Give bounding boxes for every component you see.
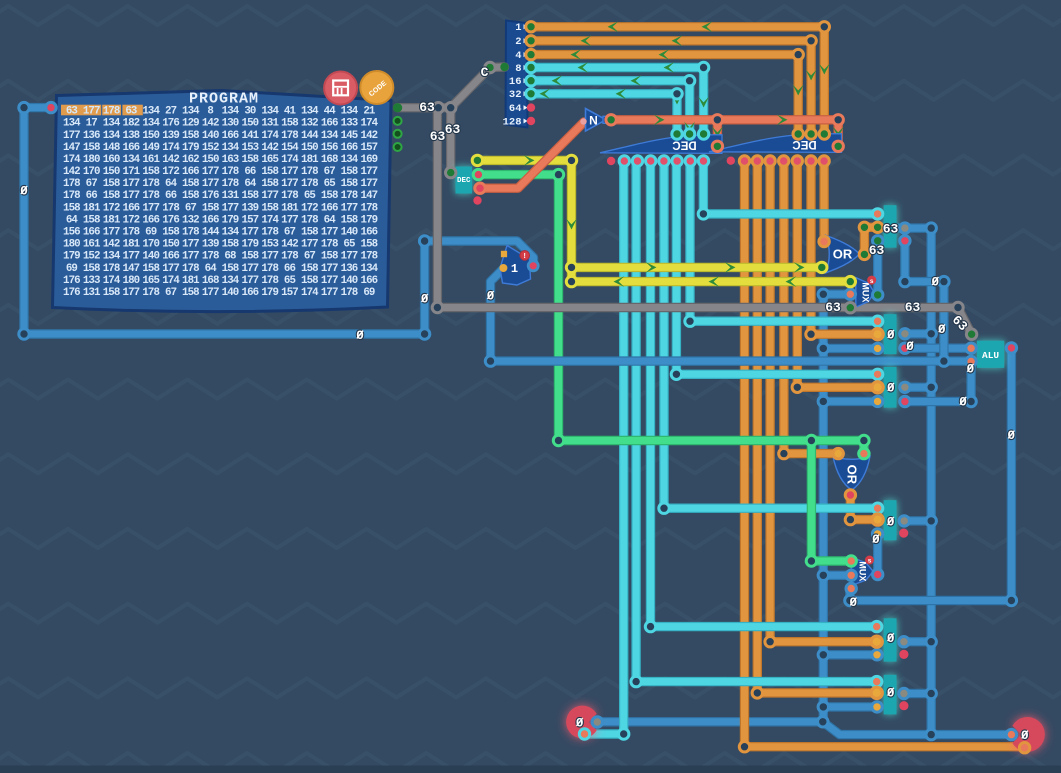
svg-text:178: 178 xyxy=(261,227,278,239)
svg-text:158: 158 xyxy=(341,178,358,190)
svg-text:DEC: DEC xyxy=(672,141,696,153)
svg-text:158: 158 xyxy=(83,214,100,226)
svg-text:178: 178 xyxy=(162,202,179,214)
svg-text:OR: OR xyxy=(833,247,853,262)
svg-text:166: 166 xyxy=(182,166,199,178)
svg-text:178: 178 xyxy=(281,251,298,263)
svg-text:180: 180 xyxy=(83,154,100,166)
svg-text:152: 152 xyxy=(202,142,219,154)
svg-text:171: 171 xyxy=(123,166,141,178)
svg-text:166: 166 xyxy=(321,118,338,130)
svg-text:s: s xyxy=(870,278,874,285)
svg-text:179: 179 xyxy=(361,214,378,226)
svg-text:156: 156 xyxy=(63,227,80,239)
svg-text:8: 8 xyxy=(207,106,213,118)
svg-text:174: 174 xyxy=(162,275,180,287)
svg-text:166: 166 xyxy=(361,227,378,239)
svg-text:148: 148 xyxy=(103,142,120,154)
svg-text:177: 177 xyxy=(321,275,338,287)
svg-text:179: 179 xyxy=(261,287,278,299)
svg-text:65: 65 xyxy=(284,275,296,287)
svg-text:65: 65 xyxy=(304,190,316,202)
svg-text:181: 181 xyxy=(123,239,141,251)
svg-text:165: 165 xyxy=(142,275,159,287)
svg-text:174: 174 xyxy=(261,130,279,142)
svg-text:177: 177 xyxy=(202,178,219,190)
svg-text:165: 165 xyxy=(261,154,278,166)
svg-text:16: 16 xyxy=(509,76,522,88)
svg-text:69: 69 xyxy=(66,263,78,275)
svg-text:181: 181 xyxy=(281,202,299,214)
svg-text:178: 178 xyxy=(202,251,219,263)
svg-text:142: 142 xyxy=(261,142,278,154)
svg-text:69: 69 xyxy=(145,227,157,239)
svg-text:64: 64 xyxy=(244,178,257,190)
svg-text:166: 166 xyxy=(123,202,140,214)
svg-text:MUX: MUX xyxy=(861,282,871,302)
svg-text:144: 144 xyxy=(301,130,319,142)
svg-text:140: 140 xyxy=(222,287,239,299)
svg-text:66: 66 xyxy=(86,190,98,202)
svg-text:67: 67 xyxy=(185,202,197,214)
svg-text:177: 177 xyxy=(361,178,378,190)
svg-text:178: 178 xyxy=(142,287,159,299)
svg-text:158: 158 xyxy=(103,287,120,299)
svg-text:63: 63 xyxy=(905,300,921,315)
svg-text:166: 166 xyxy=(222,130,239,142)
svg-text:158: 158 xyxy=(321,190,338,202)
svg-text:157: 157 xyxy=(242,214,259,226)
svg-text:174: 174 xyxy=(103,275,121,287)
svg-text:68: 68 xyxy=(224,251,236,263)
svg-text:182: 182 xyxy=(123,118,140,130)
svg-text:134: 134 xyxy=(222,227,240,239)
svg-text:134: 134 xyxy=(222,142,240,154)
svg-text:67: 67 xyxy=(304,251,316,263)
svg-text:166: 166 xyxy=(321,202,338,214)
svg-text:177: 177 xyxy=(162,263,179,275)
svg-text:65: 65 xyxy=(324,178,336,190)
svg-text:158: 158 xyxy=(341,166,358,178)
svg-text:147: 147 xyxy=(63,142,80,154)
svg-text:177: 177 xyxy=(182,239,199,251)
svg-text:177: 177 xyxy=(182,251,199,263)
svg-text:176: 176 xyxy=(63,275,80,287)
svg-text:67: 67 xyxy=(284,227,296,239)
svg-text:181: 181 xyxy=(83,202,101,214)
svg-text:168: 168 xyxy=(202,275,219,287)
svg-text:158: 158 xyxy=(83,142,100,154)
svg-text:158: 158 xyxy=(261,166,278,178)
svg-text:64: 64 xyxy=(205,263,218,275)
svg-text:142: 142 xyxy=(202,118,219,130)
svg-text:66: 66 xyxy=(244,166,256,178)
svg-text:177: 177 xyxy=(222,202,239,214)
svg-text:178: 178 xyxy=(361,251,378,263)
svg-text:158: 158 xyxy=(103,178,120,190)
svg-text:64: 64 xyxy=(165,178,178,190)
svg-text:177: 177 xyxy=(361,166,378,178)
svg-text:150: 150 xyxy=(301,142,318,154)
svg-text:147: 147 xyxy=(361,190,378,202)
svg-text:134: 134 xyxy=(261,106,279,118)
svg-text:1: 1 xyxy=(511,262,518,276)
svg-text:178: 178 xyxy=(341,287,358,299)
svg-text:178: 178 xyxy=(142,190,159,202)
svg-text:158: 158 xyxy=(142,263,159,275)
svg-text:158: 158 xyxy=(242,190,259,202)
svg-text:134: 134 xyxy=(301,106,319,118)
svg-text:134: 134 xyxy=(103,130,121,142)
svg-text:134: 134 xyxy=(103,251,121,263)
svg-text:158: 158 xyxy=(242,154,259,166)
svg-text:178: 178 xyxy=(142,178,159,190)
svg-text:177: 177 xyxy=(261,190,278,202)
svg-text:169: 169 xyxy=(361,154,378,166)
svg-text:134: 134 xyxy=(142,118,160,130)
svg-text:158: 158 xyxy=(142,166,159,178)
svg-text:177: 177 xyxy=(321,227,338,239)
svg-text:163: 163 xyxy=(222,154,239,166)
svg-text:131: 131 xyxy=(222,190,240,202)
svg-text:166: 166 xyxy=(123,142,140,154)
svg-text:134: 134 xyxy=(63,118,81,130)
svg-text:177: 177 xyxy=(321,287,338,299)
svg-text:157: 157 xyxy=(281,287,298,299)
svg-text:66: 66 xyxy=(165,190,177,202)
svg-text:132: 132 xyxy=(301,118,318,130)
svg-text:177: 177 xyxy=(202,166,219,178)
svg-text:178: 178 xyxy=(301,178,318,190)
svg-text:131: 131 xyxy=(83,287,101,299)
svg-text:174: 174 xyxy=(261,214,279,226)
svg-text:30: 30 xyxy=(244,106,256,118)
svg-text:166: 166 xyxy=(361,275,378,287)
svg-text:181: 181 xyxy=(301,154,319,166)
svg-text:177: 177 xyxy=(242,227,259,239)
svg-text:139: 139 xyxy=(162,130,179,142)
svg-text:134: 134 xyxy=(222,275,240,287)
svg-text:178: 178 xyxy=(222,166,239,178)
svg-text:160: 160 xyxy=(103,154,120,166)
svg-text:139: 139 xyxy=(202,239,219,251)
svg-text:177: 177 xyxy=(123,178,140,190)
svg-text:N: N xyxy=(589,113,598,127)
svg-text:166: 166 xyxy=(142,214,159,226)
svg-text:134: 134 xyxy=(123,154,141,166)
svg-text:129: 129 xyxy=(182,118,199,130)
svg-text:166: 166 xyxy=(83,227,100,239)
svg-text:44: 44 xyxy=(324,106,337,118)
svg-text:2: 2 xyxy=(515,36,521,48)
svg-text:DEC: DEC xyxy=(457,177,471,185)
svg-text:178: 178 xyxy=(361,202,378,214)
svg-text:178: 178 xyxy=(261,263,278,275)
svg-text:134: 134 xyxy=(182,106,200,118)
svg-text:178: 178 xyxy=(281,130,298,142)
svg-text:177: 177 xyxy=(301,239,318,251)
svg-text:177: 177 xyxy=(261,251,278,263)
svg-text:158: 158 xyxy=(63,202,80,214)
svg-text:177: 177 xyxy=(202,287,219,299)
svg-text:142: 142 xyxy=(361,130,378,142)
svg-text:170: 170 xyxy=(142,239,159,251)
svg-text:177: 177 xyxy=(341,251,358,263)
svg-text:156: 156 xyxy=(321,142,338,154)
svg-text:178: 178 xyxy=(301,214,318,226)
svg-text:178: 178 xyxy=(281,190,298,202)
svg-text:4: 4 xyxy=(515,50,521,62)
svg-text:21: 21 xyxy=(363,106,376,118)
svg-text:136: 136 xyxy=(83,130,100,142)
svg-text:65: 65 xyxy=(343,239,355,251)
svg-text:179: 179 xyxy=(242,239,259,251)
svg-text:67: 67 xyxy=(86,178,98,190)
svg-text:162: 162 xyxy=(182,154,199,166)
svg-text:178: 178 xyxy=(63,178,80,190)
svg-text:177: 177 xyxy=(281,178,298,190)
svg-text:158: 158 xyxy=(361,239,378,251)
svg-text:178: 178 xyxy=(301,166,318,178)
svg-text:158: 158 xyxy=(162,227,179,239)
svg-text:176: 176 xyxy=(63,287,80,299)
svg-text:133: 133 xyxy=(83,275,100,287)
svg-text:172: 172 xyxy=(103,202,120,214)
svg-text:139: 139 xyxy=(242,202,259,214)
svg-text:154: 154 xyxy=(281,142,299,154)
svg-text:133: 133 xyxy=(341,118,358,130)
svg-text:176: 176 xyxy=(162,214,179,226)
svg-text:140: 140 xyxy=(202,130,219,142)
svg-text:41: 41 xyxy=(284,106,297,118)
svg-text:138: 138 xyxy=(123,130,140,142)
svg-text:174: 174 xyxy=(301,287,319,299)
svg-text:177: 177 xyxy=(63,130,80,142)
svg-text:136: 136 xyxy=(341,263,358,275)
svg-text:158: 158 xyxy=(321,251,338,263)
svg-text:177: 177 xyxy=(242,275,259,287)
svg-text:178: 178 xyxy=(103,106,120,118)
svg-text:63: 63 xyxy=(430,129,446,144)
svg-text:67: 67 xyxy=(324,166,336,178)
svg-text:166: 166 xyxy=(202,214,219,226)
svg-text:128: 128 xyxy=(503,116,522,128)
svg-text:64: 64 xyxy=(66,214,79,226)
svg-text:142: 142 xyxy=(281,239,298,251)
svg-text:142: 142 xyxy=(103,239,120,251)
svg-text:158: 158 xyxy=(301,275,318,287)
svg-text:177: 177 xyxy=(242,263,259,275)
svg-text:172: 172 xyxy=(162,166,179,178)
svg-text:177: 177 xyxy=(83,106,100,118)
svg-text:177: 177 xyxy=(321,263,338,275)
svg-text:172: 172 xyxy=(123,214,140,226)
svg-text:158: 158 xyxy=(182,287,199,299)
svg-text:67: 67 xyxy=(165,287,177,299)
svg-text:147: 147 xyxy=(123,263,140,275)
svg-text:158: 158 xyxy=(182,190,199,202)
svg-text:158: 158 xyxy=(202,202,219,214)
svg-text:142: 142 xyxy=(63,166,80,178)
svg-text:177: 177 xyxy=(281,166,298,178)
svg-text:150: 150 xyxy=(242,118,259,130)
svg-text:179: 179 xyxy=(63,251,80,263)
svg-text:158: 158 xyxy=(281,118,298,130)
svg-text:153: 153 xyxy=(242,142,259,154)
svg-text:150: 150 xyxy=(142,130,159,142)
svg-text:168: 168 xyxy=(321,154,338,166)
svg-text:158: 158 xyxy=(261,178,278,190)
svg-text:140: 140 xyxy=(341,227,358,239)
svg-text:178: 178 xyxy=(182,227,199,239)
svg-text:!: ! xyxy=(524,253,526,260)
svg-text:158: 158 xyxy=(222,239,239,251)
svg-text:176: 176 xyxy=(162,118,179,130)
svg-text:158: 158 xyxy=(83,263,100,275)
svg-text:150: 150 xyxy=(162,239,179,251)
svg-text:1: 1 xyxy=(515,22,521,34)
svg-text:178: 178 xyxy=(261,275,278,287)
svg-text:130: 130 xyxy=(222,118,239,130)
svg-text:150: 150 xyxy=(202,154,219,166)
svg-text:158: 158 xyxy=(182,178,199,190)
svg-text:134: 134 xyxy=(103,118,121,130)
svg-text:158: 158 xyxy=(222,263,239,275)
svg-text:170: 170 xyxy=(83,166,100,178)
svg-text:149: 149 xyxy=(142,142,159,154)
svg-text:179: 179 xyxy=(222,214,239,226)
svg-text:OR: OR xyxy=(844,465,859,485)
svg-text:172: 172 xyxy=(301,202,318,214)
svg-text:150: 150 xyxy=(103,166,120,178)
svg-text:178: 178 xyxy=(321,239,338,251)
svg-text:158: 158 xyxy=(261,202,278,214)
svg-text:134: 134 xyxy=(321,130,339,142)
svg-text:63: 63 xyxy=(883,222,899,237)
svg-text:181: 181 xyxy=(182,275,200,287)
svg-text:32: 32 xyxy=(509,89,522,101)
svg-text:63: 63 xyxy=(445,122,461,137)
svg-text:132: 132 xyxy=(182,214,199,226)
svg-text:177: 177 xyxy=(123,251,140,263)
svg-text:141: 141 xyxy=(242,130,260,142)
svg-text:144: 144 xyxy=(202,227,220,239)
svg-text:180: 180 xyxy=(63,239,80,251)
svg-text:178: 178 xyxy=(222,178,239,190)
svg-text:166: 166 xyxy=(341,142,358,154)
svg-text:157: 157 xyxy=(361,142,378,154)
svg-text:63: 63 xyxy=(825,300,841,315)
svg-text:174: 174 xyxy=(162,142,180,154)
svg-text:140: 140 xyxy=(142,251,159,263)
svg-text:27: 27 xyxy=(165,106,177,118)
svg-text:161: 161 xyxy=(83,239,101,251)
svg-text:178: 178 xyxy=(341,190,358,202)
svg-text:158: 158 xyxy=(341,214,358,226)
svg-text:64: 64 xyxy=(324,214,337,226)
svg-text:158: 158 xyxy=(242,251,259,263)
svg-text:17: 17 xyxy=(86,118,98,130)
svg-text:158: 158 xyxy=(182,130,199,142)
svg-text:166: 166 xyxy=(242,287,259,299)
svg-text:153: 153 xyxy=(261,239,278,251)
svg-text:178: 178 xyxy=(103,263,120,275)
svg-text:177: 177 xyxy=(281,214,298,226)
svg-text:177: 177 xyxy=(103,227,120,239)
svg-text:140: 140 xyxy=(341,275,358,287)
svg-text:131: 131 xyxy=(261,118,279,130)
svg-text:161: 161 xyxy=(142,154,160,166)
svg-text:s: s xyxy=(868,558,872,565)
svg-text:152: 152 xyxy=(83,251,100,263)
svg-text:ALU: ALU xyxy=(982,350,999,361)
svg-text:174: 174 xyxy=(361,118,379,130)
svg-text:DEC: DEC xyxy=(792,141,816,153)
svg-text:178: 178 xyxy=(123,227,140,239)
svg-text:69: 69 xyxy=(363,287,375,299)
svg-text:63: 63 xyxy=(66,106,78,118)
svg-text:177: 177 xyxy=(123,190,140,202)
svg-text:63: 63 xyxy=(125,106,137,118)
svg-text:177: 177 xyxy=(142,202,159,214)
svg-text:63: 63 xyxy=(419,100,435,115)
svg-text:145: 145 xyxy=(341,130,358,142)
svg-text:142: 142 xyxy=(162,154,179,166)
svg-text:63: 63 xyxy=(869,243,885,258)
svg-text:179: 179 xyxy=(182,142,199,154)
svg-text:158: 158 xyxy=(301,263,318,275)
svg-text:176: 176 xyxy=(202,190,219,202)
svg-text:66: 66 xyxy=(284,263,296,275)
svg-text:177: 177 xyxy=(123,287,140,299)
svg-text:C: C xyxy=(481,65,489,80)
svg-text:178: 178 xyxy=(63,190,80,202)
svg-text:158: 158 xyxy=(103,190,120,202)
svg-text:64: 64 xyxy=(509,103,522,115)
svg-text:178: 178 xyxy=(182,263,199,275)
svg-text:8: 8 xyxy=(515,63,521,75)
svg-text:MUX: MUX xyxy=(858,561,868,581)
svg-text:180: 180 xyxy=(123,275,140,287)
svg-text:134: 134 xyxy=(361,263,379,275)
svg-text:181: 181 xyxy=(103,214,121,226)
svg-text:174: 174 xyxy=(63,154,81,166)
svg-text:134: 134 xyxy=(142,106,160,118)
svg-text:134: 134 xyxy=(341,154,359,166)
svg-text:177: 177 xyxy=(341,202,358,214)
svg-text:134: 134 xyxy=(341,106,359,118)
svg-text:166: 166 xyxy=(162,251,179,263)
svg-text:134: 134 xyxy=(222,106,240,118)
svg-text:174: 174 xyxy=(281,154,299,166)
svg-text:158: 158 xyxy=(301,227,318,239)
